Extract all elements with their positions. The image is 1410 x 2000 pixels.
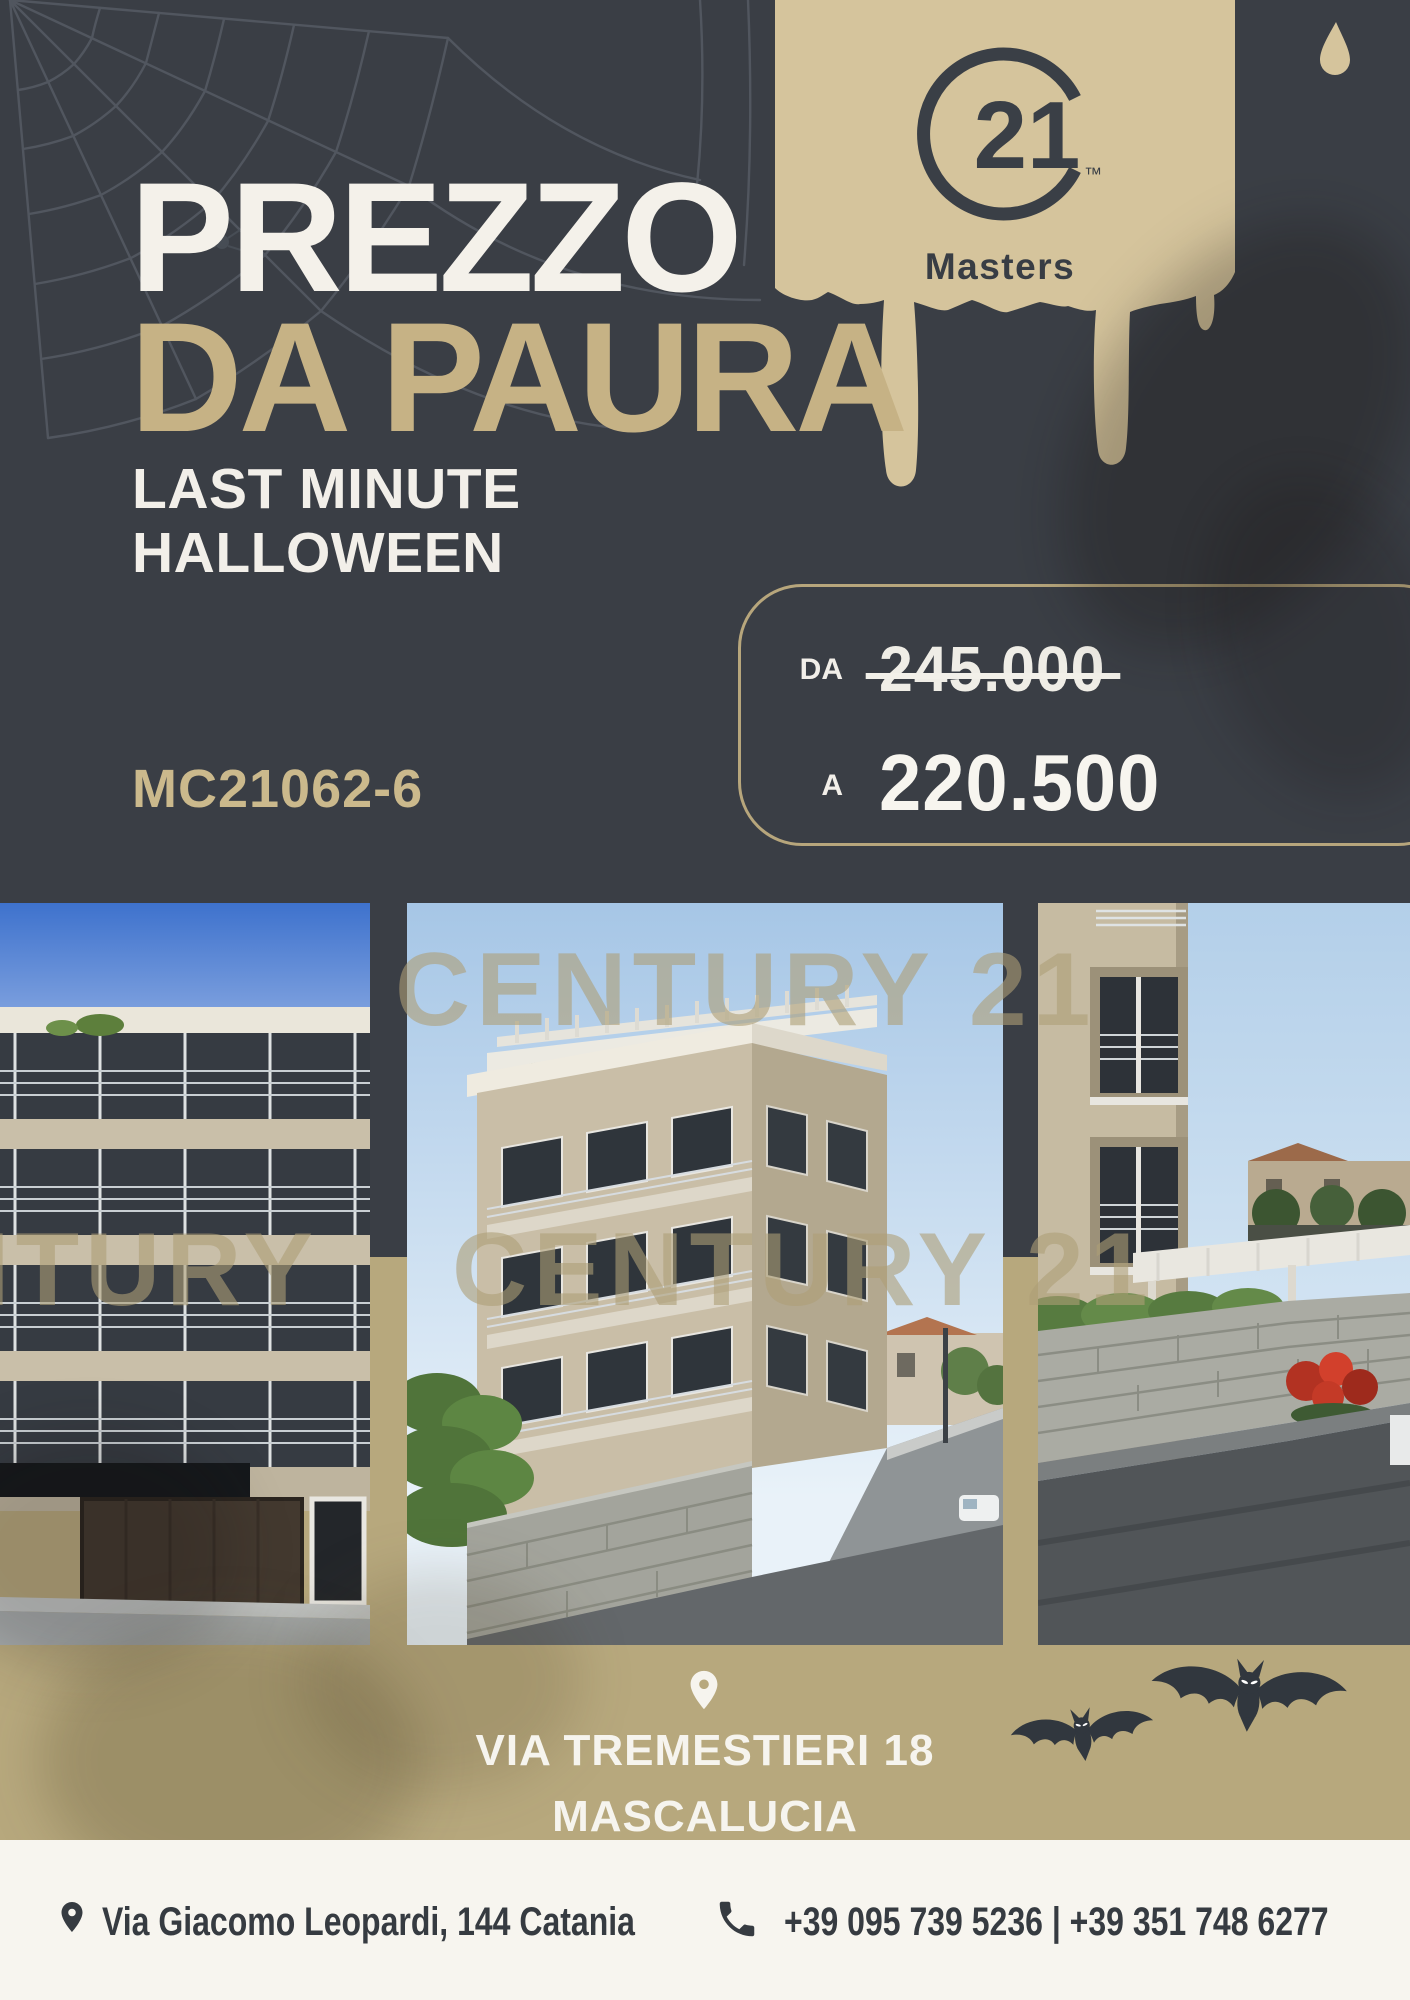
bat-icon-small xyxy=(1004,1692,1161,1782)
agency-phones: +39 095 739 5236 | +39 351 748 6277 xyxy=(784,1900,1329,1945)
strikethrough-line xyxy=(866,673,1121,679)
photo-building-front-elevation xyxy=(0,903,370,1645)
price-card: DA 245.000 A 220.500 xyxy=(738,584,1410,846)
hero-title-line2: DA PAURA xyxy=(130,308,904,448)
price-to-label: A xyxy=(775,771,843,801)
property-address: VIA TREMESTIERI 18 MASCALUCIA xyxy=(305,1726,1105,1842)
century21-logo: 21 ™ xyxy=(903,34,1103,249)
location-pin-icon xyxy=(681,1662,727,1718)
price-new-value: 220.500 xyxy=(879,743,1160,823)
logo-number: 21 xyxy=(974,82,1081,189)
bat-icon-large xyxy=(1143,1643,1353,1757)
phone-icon xyxy=(714,1896,760,1942)
hero-title-line1: PREZZO xyxy=(130,168,904,308)
listing-code: MC21062-6 xyxy=(132,758,423,820)
property-address-street: VIA TREMESTIERI 18 xyxy=(305,1726,1105,1776)
agency-address-pin-icon xyxy=(54,1894,90,1940)
price-from-label: DA xyxy=(775,655,843,685)
hero-tagline: LAST MINUTE HALLOWEEN xyxy=(132,458,521,586)
hero-title: PREZZO DA PAURA xyxy=(130,168,904,448)
price-old-value: 245.000 xyxy=(879,637,1105,701)
photo-building-courtyard-view xyxy=(1038,903,1410,1645)
tagline-line2: HALLOWEEN xyxy=(132,522,521,586)
tagline-line1: LAST MINUTE xyxy=(132,458,521,522)
property-address-city: MASCALUCIA xyxy=(305,1792,1105,1842)
logo-trademark: ™ xyxy=(1084,164,1102,184)
photo-building-angled-view xyxy=(407,903,1003,1645)
halloween-listing-poster: 21 ™ Masters PREZZO DA PAURA LAST MINUTE… xyxy=(0,0,1410,2000)
agency-address: Via Giacomo Leopardi, 144 Catania xyxy=(102,1900,635,1945)
